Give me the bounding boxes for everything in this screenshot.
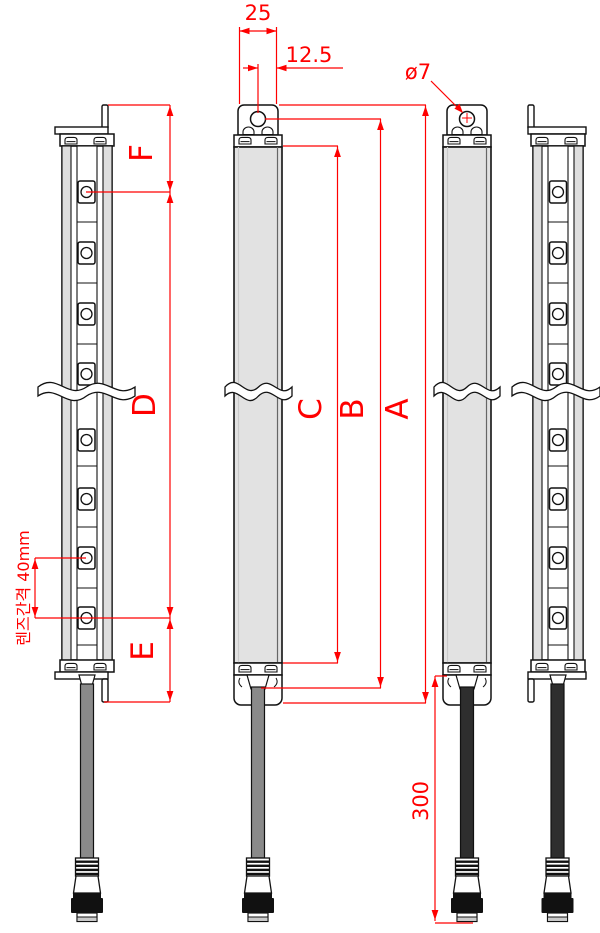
sensor-bar-front-emitter [225, 105, 292, 922]
dim-label-hole-diameter: ø7 [405, 60, 431, 84]
dim-label-a: A [380, 398, 416, 419]
dim-label-cable-length: 300 [409, 781, 433, 821]
dim-label-e: E [125, 641, 161, 661]
sensor-bar-side-right [512, 105, 600, 922]
cable-connector [71, 858, 103, 922]
top-bracket-flange [528, 127, 586, 134]
cable-gray [81, 684, 94, 858]
housing-body [234, 147, 282, 663]
dim-label-c: C [293, 398, 329, 420]
dim-label-bracket-width: 25 [245, 1, 272, 25]
sensor-bar-side-left [38, 105, 135, 922]
cable-black [551, 684, 564, 858]
technical-drawing-page: 25 12.5 ø7 F D E C B A 300 렌즈간격 40mm [0, 0, 600, 933]
top-bracket-flange [55, 127, 108, 134]
bottom-bracket-tab [528, 679, 534, 702]
sensor-bar-front-receiver [434, 105, 500, 922]
lens-strip [77, 146, 97, 660]
top-bracket-tab [102, 105, 108, 129]
housing-body [443, 147, 491, 663]
cable-connector [242, 858, 274, 922]
technical-drawing-svg: 25 12.5 ø7 F D E C B A 300 렌즈간격 40mm [0, 0, 600, 933]
lens-strip [548, 146, 568, 660]
cable-connector [542, 858, 574, 922]
mounting-hole [251, 112, 266, 127]
cable-black [461, 687, 474, 858]
cable-connector [451, 858, 483, 922]
bottom-bracket-tab [102, 679, 108, 702]
dim-label-f: F [124, 144, 160, 162]
dim-label-hole-offset: 12.5 [286, 43, 333, 67]
dim-label-b: B [335, 398, 371, 419]
dim-label-lens-pitch: 렌즈간격 40mm [14, 530, 33, 646]
top-bracket-tab [528, 105, 534, 129]
dim-label-d: D [127, 393, 163, 417]
cable-gray [252, 687, 265, 858]
